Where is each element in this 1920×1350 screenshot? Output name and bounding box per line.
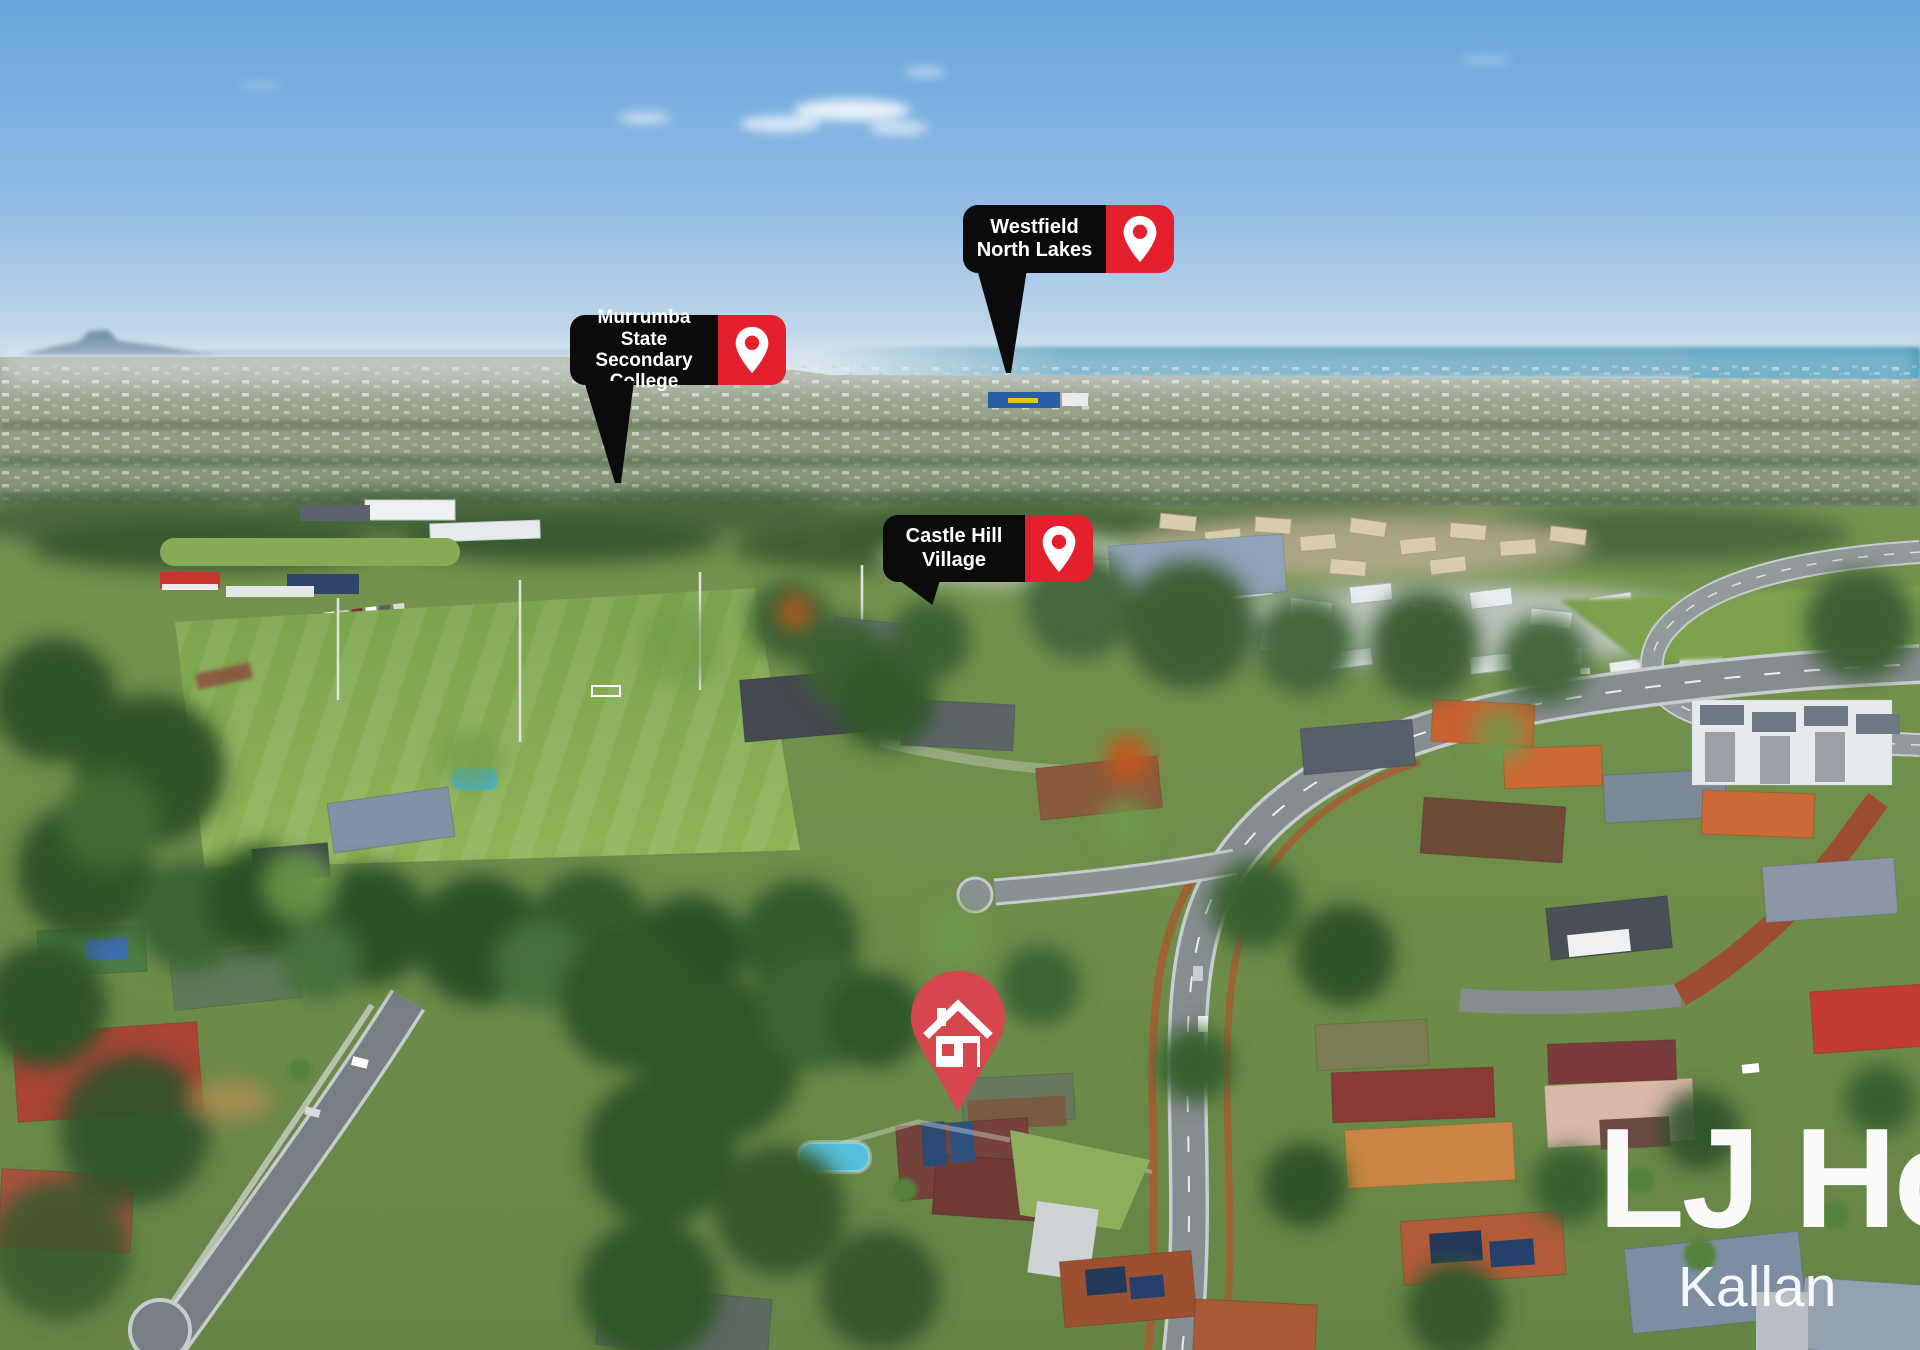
agency-brand-text: LJ Hoo [1598,1108,1920,1250]
marker-castle-hill-village: Castle Hill Village [883,515,1093,582]
marker-label: Westfield North Lakes [963,205,1106,273]
agency-suburb-text: Kallan [1678,1254,1920,1320]
marker-murrumba-college: Murrumba State Secondary College [570,315,786,385]
marker-label: Castle Hill Village [883,515,1025,582]
aerial-property-photo: Westfield North Lakes Murrumba State Sec… [0,0,1920,1350]
agency-watermark: LJ Hoo Kallan [1598,1108,1920,1320]
property-pin [908,968,1008,1116]
house-icon [908,968,1008,1116]
map-pin-icon [1106,205,1174,273]
map-pin-icon [1025,515,1093,582]
map-pin-icon [718,315,786,385]
marker-label: Murrumba State Secondary College [570,315,718,385]
marker-westfield-north-lakes: Westfield North Lakes [963,205,1174,273]
